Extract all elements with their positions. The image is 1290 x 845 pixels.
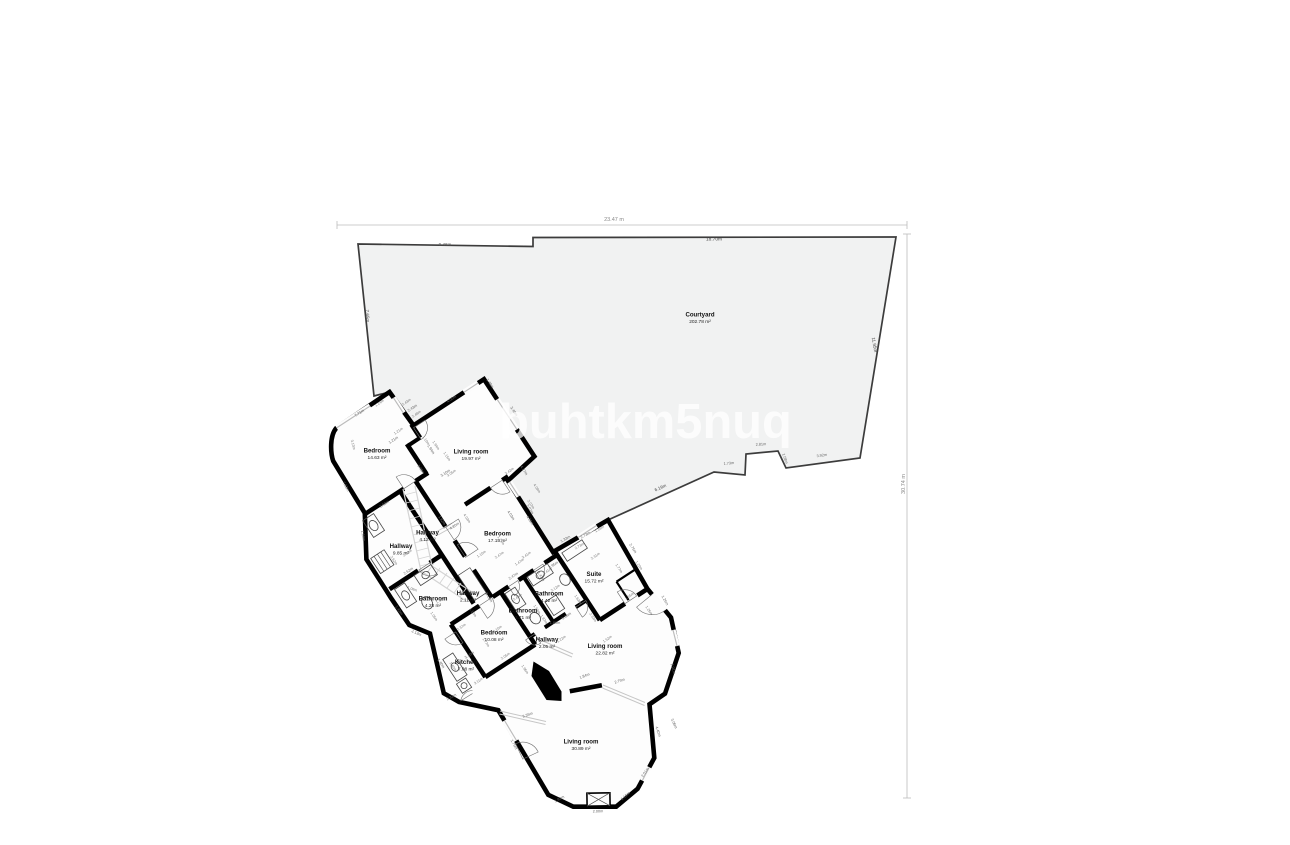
- svg-text:30.74 m: 30.74 m: [901, 474, 907, 494]
- svg-text:3.71 m²: 3.71 m²: [515, 615, 532, 621]
- svg-text:202.78 m²: 202.78 m²: [689, 319, 711, 325]
- svg-text:Living room: Living room: [564, 739, 599, 746]
- svg-text:buhtkm5nuq: buhtkm5nuq: [499, 395, 792, 449]
- svg-text:30.89 m²: 30.89 m²: [572, 746, 591, 752]
- svg-text:Suite: Suite: [587, 571, 603, 578]
- svg-text:4.12 m²: 4.12 m²: [419, 537, 436, 543]
- svg-text:4.28 m²: 4.28 m²: [425, 603, 442, 609]
- svg-text:3.06m: 3.06m: [670, 718, 678, 729]
- svg-text:19.97 m²: 19.97 m²: [462, 456, 481, 462]
- svg-text:2.11 m²: 2.11 m²: [460, 598, 476, 604]
- svg-text:4.42 m²: 4.42 m²: [541, 598, 558, 604]
- svg-text:1.63m: 1.63m: [360, 530, 366, 541]
- svg-text:22.82 m²: 22.82 m²: [596, 651, 615, 657]
- svg-text:9.46m: 9.46m: [439, 242, 452, 247]
- svg-text:1.80m: 1.80m: [550, 621, 561, 625]
- svg-text:7.08 m²: 7.08 m²: [458, 667, 475, 673]
- svg-text:23.47 m: 23.47 m: [604, 217, 624, 223]
- svg-text:7.65m: 7.65m: [365, 309, 371, 322]
- svg-text:Kitchen: Kitchen: [455, 659, 478, 666]
- svg-text:15.72 m²: 15.72 m²: [585, 579, 604, 585]
- svg-text:Hallway: Hallway: [457, 590, 480, 597]
- svg-text:Bathroom: Bathroom: [535, 591, 564, 598]
- svg-text:14.63 m²: 14.63 m²: [368, 455, 387, 461]
- svg-text:2.75m: 2.75m: [628, 543, 637, 554]
- svg-text:18.70m: 18.70m: [706, 237, 722, 243]
- svg-text:2.05 m²: 2.05 m²: [539, 644, 556, 650]
- svg-text:Bedroom: Bedroom: [364, 448, 391, 455]
- svg-text:Bathroom: Bathroom: [509, 608, 538, 615]
- svg-text:Living room: Living room: [454, 449, 489, 456]
- svg-text:4.40m: 4.40m: [654, 726, 661, 737]
- svg-text:2.00m: 2.00m: [593, 809, 604, 813]
- svg-text:Courtyard: Courtyard: [685, 312, 714, 319]
- svg-text:Hallway: Hallway: [416, 530, 439, 537]
- svg-text:Living room: Living room: [588, 643, 623, 650]
